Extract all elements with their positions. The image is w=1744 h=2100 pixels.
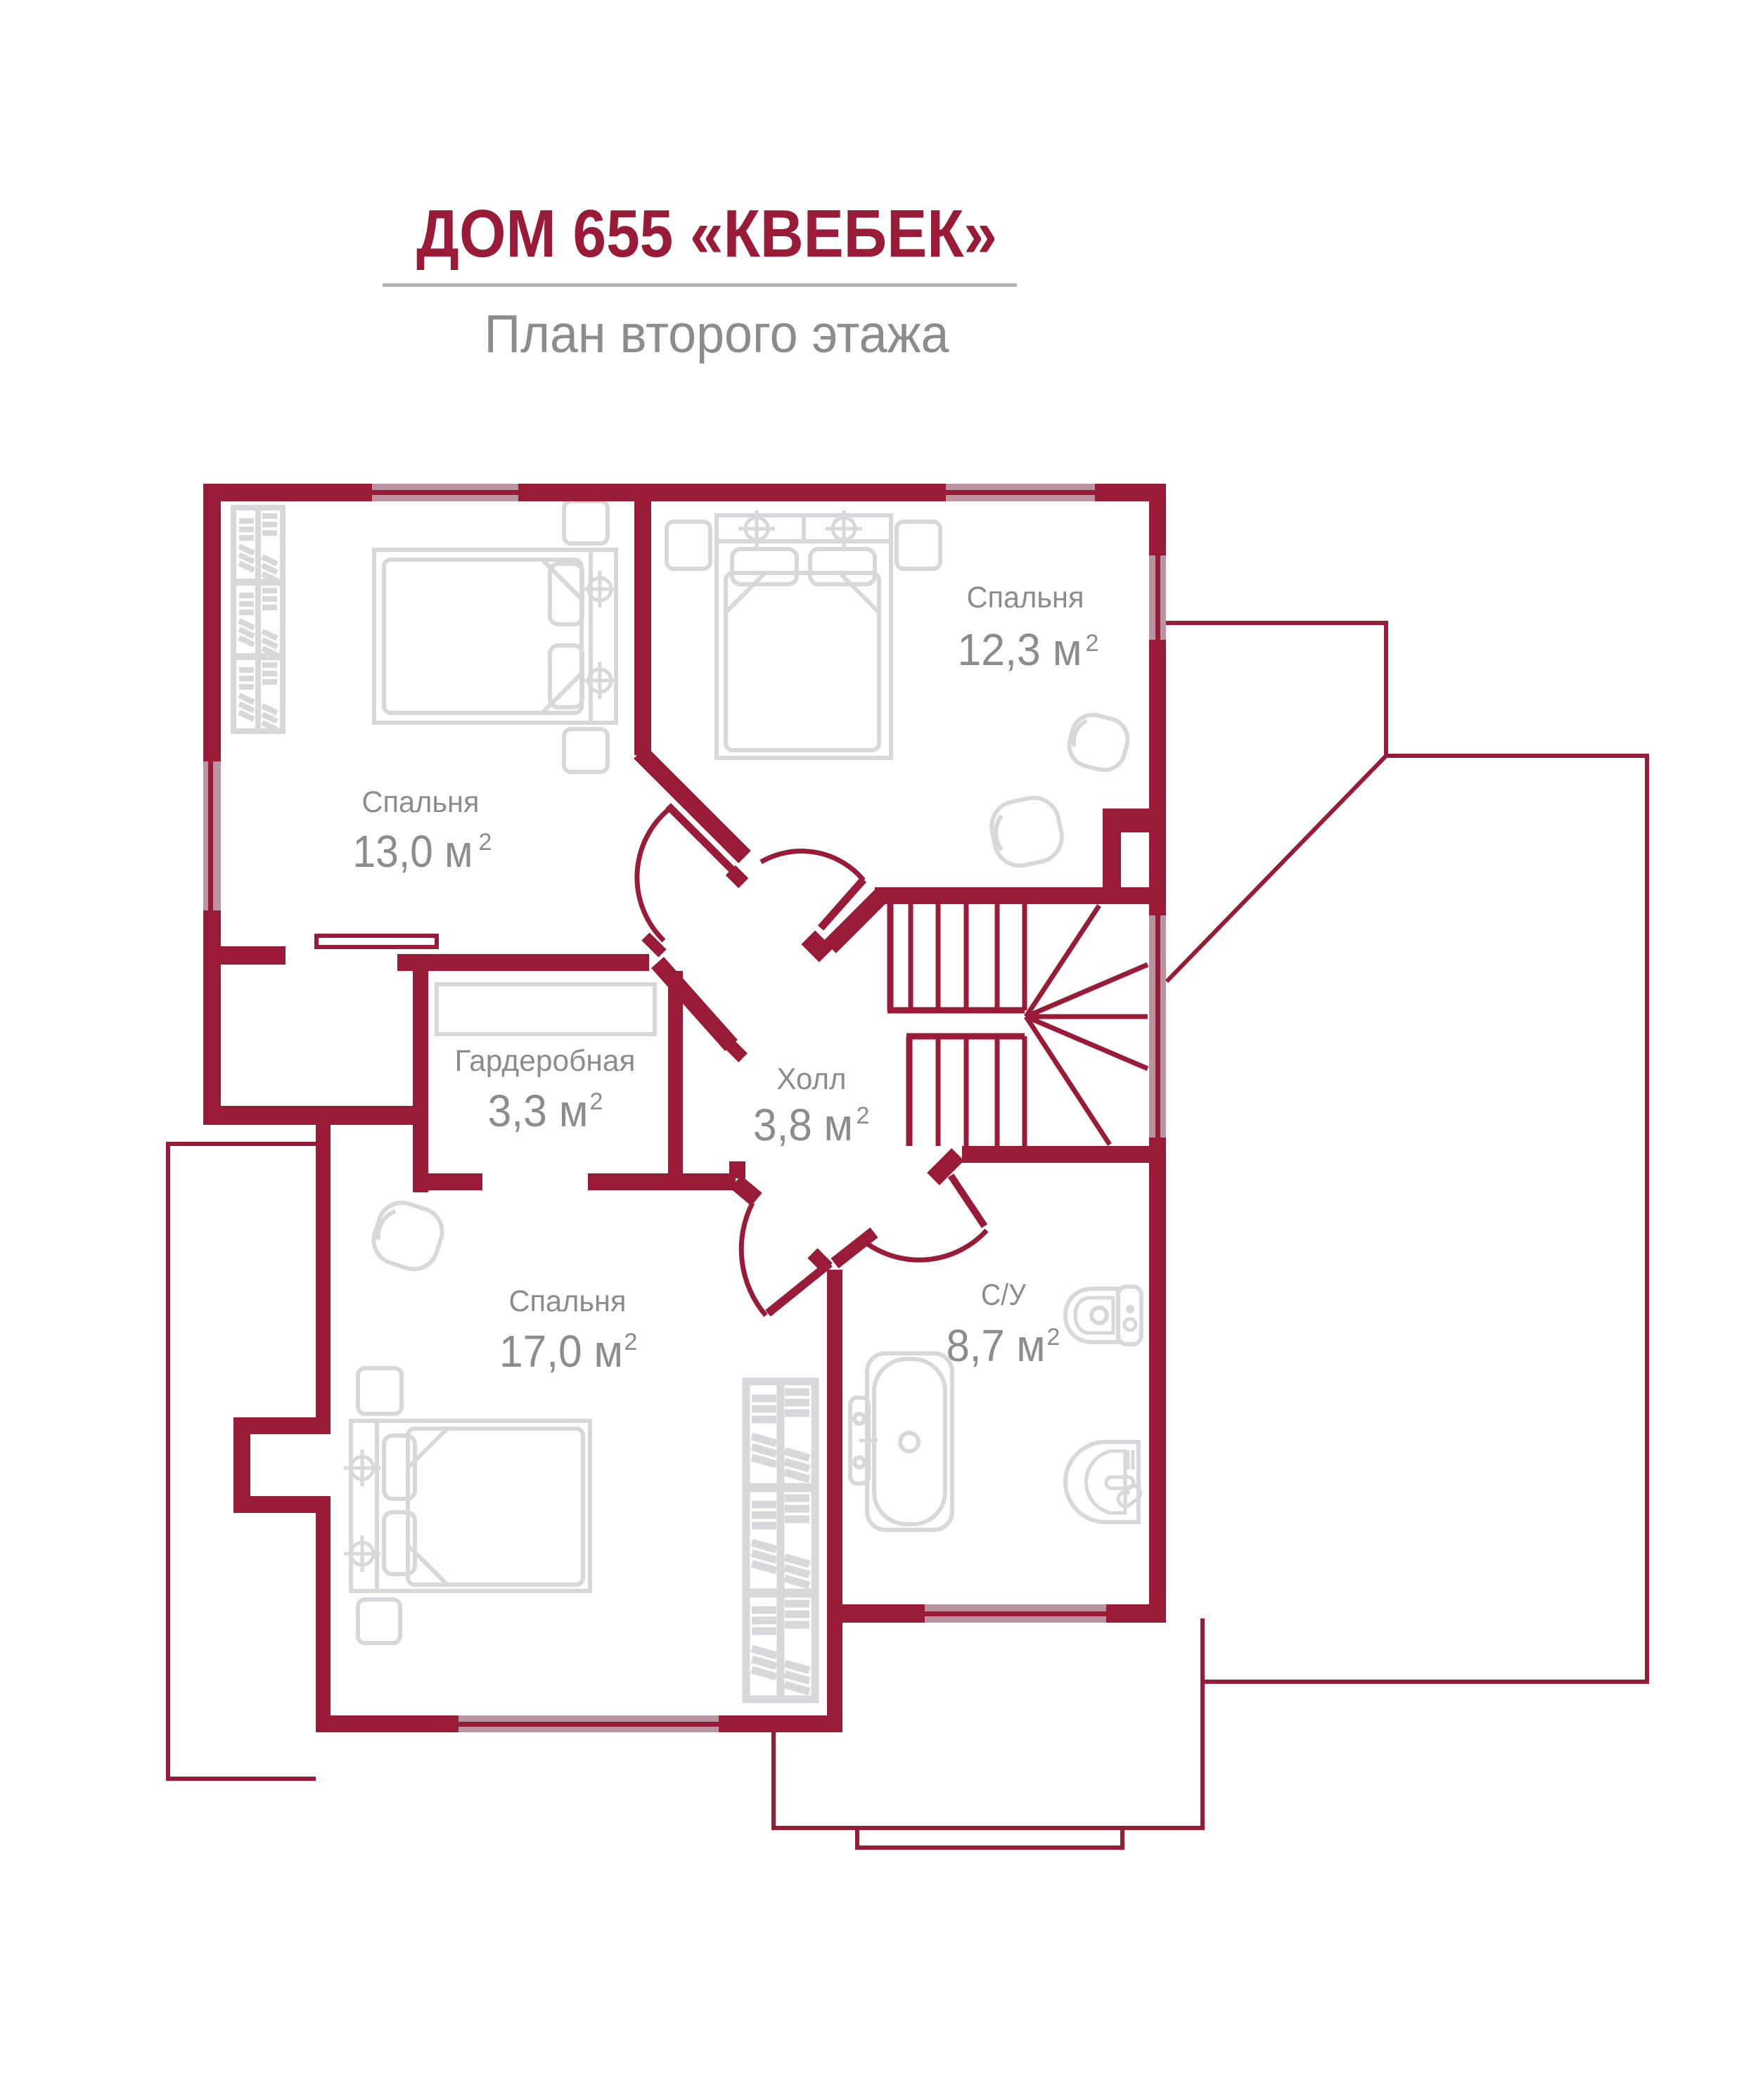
svg-text:12,3 м: 12,3 м xyxy=(958,624,1082,675)
svg-text:13,0 м: 13,0 м xyxy=(353,826,473,877)
svg-text:2: 2 xyxy=(590,1088,603,1115)
svg-text:8,7 м: 8,7 м xyxy=(947,1320,1046,1371)
svg-text:2: 2 xyxy=(1086,630,1099,657)
svg-text:17,0 м: 17,0 м xyxy=(499,1326,623,1377)
svg-text:Холл: Холл xyxy=(777,1062,847,1096)
svg-text:2: 2 xyxy=(624,1329,638,1355)
svg-text:Спальня: Спальня xyxy=(509,1284,627,1318)
svg-text:ДОМ 655 «КВЕБЕК»: ДОМ 655 «КВЕБЕК» xyxy=(416,196,997,271)
svg-text:2: 2 xyxy=(1047,1324,1060,1351)
svg-text:2: 2 xyxy=(479,829,492,856)
svg-text:С/У: С/У xyxy=(981,1278,1027,1312)
svg-text:Спальня: Спальня xyxy=(362,785,480,819)
svg-text:Гардеробная: Гардеробная xyxy=(455,1044,636,1078)
svg-text:Спальня: Спальня xyxy=(967,581,1084,614)
svg-text:3,8 м: 3,8 м xyxy=(753,1100,853,1150)
svg-text:План второго этажа: План второго этажа xyxy=(485,304,950,364)
svg-text:2: 2 xyxy=(857,1102,870,1129)
svg-text:3,3 м: 3,3 м xyxy=(488,1086,589,1136)
